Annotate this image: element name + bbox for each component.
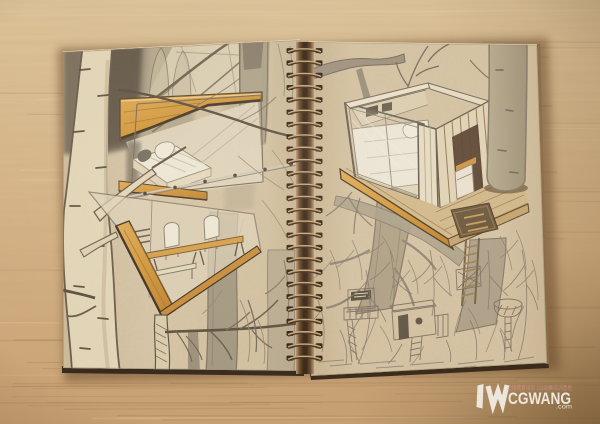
svg-text:.com: .com: [556, 405, 572, 411]
svg-text:三维教育培训 CG动画培训基地: 三维教育培训 CG动画培训基地: [507, 384, 572, 392]
